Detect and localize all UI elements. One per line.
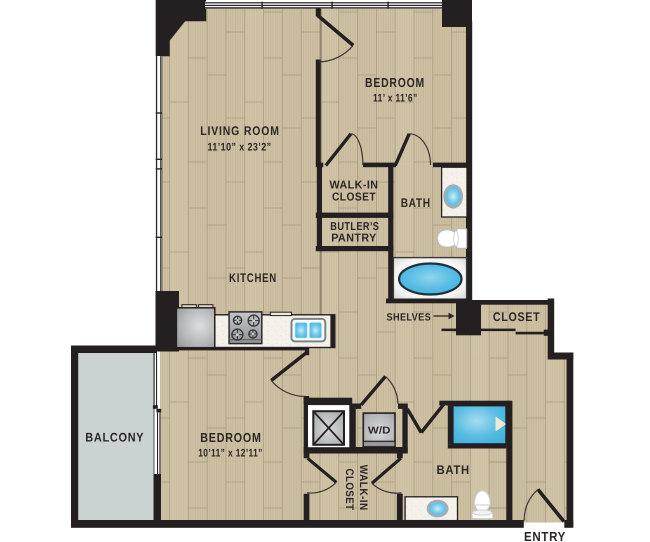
svg-text:BEDROOM: BEDROOM [200, 430, 262, 445]
svg-text:BATH: BATH [401, 196, 431, 210]
svg-text:BUTLER’S: BUTLER’S [330, 221, 379, 233]
svg-text:CLOSET: CLOSET [332, 191, 376, 203]
svg-text:11’ x 11’6”: 11’ x 11’6” [373, 93, 418, 105]
svg-text:PANTRY: PANTRY [331, 233, 377, 245]
svg-text:ENTRY: ENTRY [524, 529, 566, 542]
svg-text:KITCHEN: KITCHEN [229, 271, 277, 285]
svg-text:BEDROOM: BEDROOM [365, 75, 425, 90]
svg-text:CLOSET: CLOSET [493, 310, 541, 324]
svg-text:BATH: BATH [436, 463, 470, 477]
svg-text:SHELVES: SHELVES [387, 312, 432, 324]
svg-text:11’10” x 23’2”: 11’10” x 23’2” [208, 141, 272, 153]
svg-text:W/D: W/D [368, 426, 391, 437]
svg-text:BALCONY: BALCONY [85, 431, 144, 445]
svg-text:WALK-IN: WALK-IN [330, 180, 379, 192]
svg-text:LIVING ROOM: LIVING ROOM [200, 124, 280, 138]
svg-text:10’11” x 12’11”: 10’11” x 12’11” [198, 447, 263, 459]
